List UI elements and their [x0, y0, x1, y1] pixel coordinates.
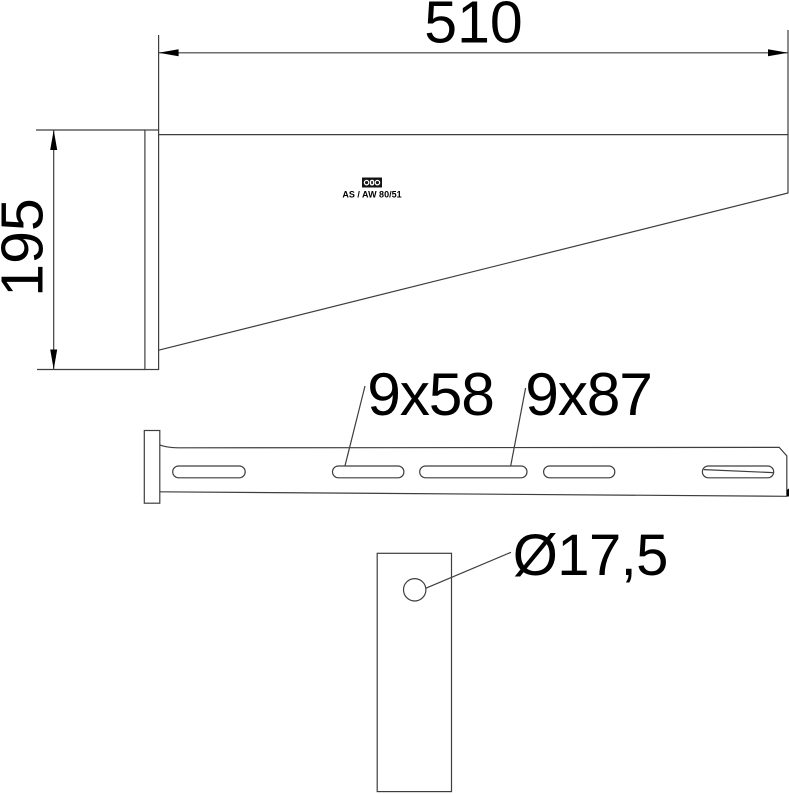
- svg-text:195: 195: [0, 198, 56, 296]
- svg-text:Ø17,5: Ø17,5: [513, 523, 668, 588]
- svg-text:9x58: 9x58: [367, 360, 493, 428]
- svg-text:AS / AW 80/51: AS / AW 80/51: [342, 190, 401, 200]
- svg-text:9x87: 9x87: [525, 360, 651, 428]
- svg-text:510: 510: [424, 0, 522, 55]
